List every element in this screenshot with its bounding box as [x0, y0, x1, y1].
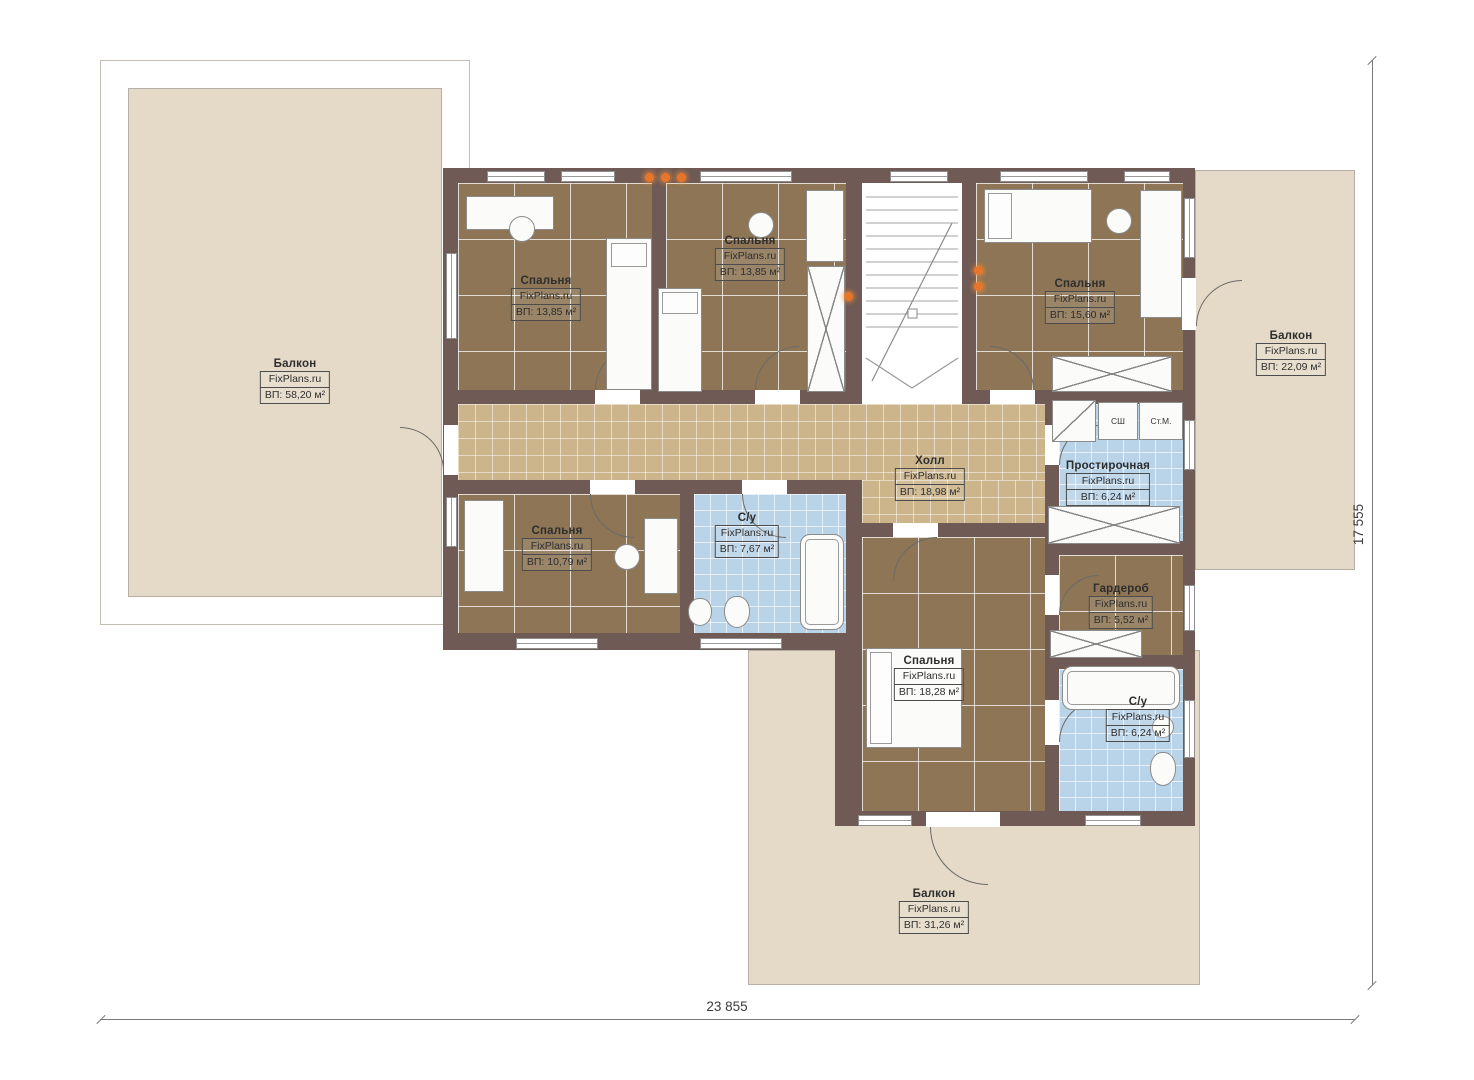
room-area: ВП: 18,28 м² — [894, 684, 964, 701]
pillow — [870, 652, 892, 744]
chair — [509, 216, 535, 242]
door-opening — [926, 812, 1000, 827]
room-area: ВП: 31,26 м² — [899, 917, 969, 934]
room-area: ВП: 13,85 м² — [511, 304, 581, 321]
chair — [1106, 208, 1132, 234]
dimension-width: 23 855 — [706, 999, 747, 1014]
wardrobe-cabinet — [1052, 356, 1172, 392]
window — [890, 171, 948, 182]
room-area: ВП: 6,24 м² — [1066, 489, 1150, 506]
bidet — [688, 598, 712, 626]
window — [1085, 815, 1141, 826]
window — [1184, 700, 1195, 758]
window — [700, 171, 792, 182]
balcony-left-floor — [128, 88, 442, 597]
light-icon — [645, 173, 654, 182]
room-area: ВП: 5,52 м² — [1089, 612, 1153, 629]
door-opening — [755, 390, 800, 404]
door-opening — [590, 480, 635, 494]
window — [1184, 585, 1195, 631]
room-label-balcony-bottom: Балкон FixPlans.ru ВП: 31,26 м² — [899, 888, 969, 934]
room-label-bedroom-bottom: Спальня FixPlans.ru ВП: 18,28 м² — [894, 655, 964, 701]
dimension-height: 17 555 — [1351, 504, 1366, 545]
wardrobe-cabinet — [1050, 630, 1142, 658]
room-area: ВП: 13,85 м² — [715, 264, 785, 281]
door-opening — [1045, 575, 1059, 615]
closet-cabinet — [1048, 506, 1180, 544]
brand-watermark: FixPlans.ru — [894, 668, 964, 685]
door-opening — [444, 425, 458, 475]
room-name: Балкон — [260, 358, 330, 370]
room-name: Спальня — [511, 275, 581, 287]
dimension-line-right — [1372, 60, 1373, 985]
dryer-box: СШ — [1098, 402, 1138, 440]
room-name: Балкон — [899, 888, 969, 900]
light-icon — [974, 266, 983, 275]
sofa — [464, 500, 504, 592]
brand-watermark: FixPlans.ru — [260, 371, 330, 388]
room-label-bedroom-bl: Спальня FixPlans.ru ВП: 10,79 м² — [522, 525, 592, 571]
laundry-sink — [1052, 400, 1096, 442]
room-label-bedroom-tl: Спальня FixPlans.ru ВП: 13,85 м² — [511, 275, 581, 321]
room-label-bathroom-2: С/у FixPlans.ru ВП: 6,24 м² — [1106, 696, 1170, 742]
light-icon — [974, 282, 983, 291]
room-label-hall: Холл FixPlans.ru ВП: 18,98 м² — [895, 455, 965, 501]
room-name: Балкон — [1256, 330, 1326, 342]
room-area: ВП: 18,98 м² — [895, 484, 965, 501]
window — [487, 171, 545, 182]
room-area: ВП: 15,60 м² — [1045, 307, 1115, 324]
room-name: С/у — [1106, 696, 1170, 708]
chair — [614, 544, 640, 570]
door-opening — [595, 390, 640, 404]
light-icon — [844, 292, 853, 301]
brand-watermark: FixPlans.ru — [511, 288, 581, 305]
pillow — [611, 243, 647, 267]
light-icon — [677, 173, 686, 182]
floor-plan-canvas: СШ Ст.М. Балкон FixPlans.ru ВП: 58,20 м²… — [0, 0, 1474, 1080]
door-opening — [893, 523, 938, 537]
room-name: Простирочная — [1066, 460, 1150, 472]
desk — [644, 518, 678, 594]
brand-watermark: FixPlans.ru — [1045, 291, 1115, 308]
window — [858, 815, 912, 826]
room-name: С/у — [715, 512, 779, 524]
dryer-label: СШ — [1111, 416, 1125, 426]
brand-watermark: FixPlans.ru — [715, 248, 785, 265]
room-name: Спальня — [1045, 278, 1115, 290]
brand-watermark: FixPlans.ru — [899, 901, 969, 918]
room-label-bedroom-tr: Спальня FixPlans.ru ВП: 15,60 м² — [1045, 278, 1115, 324]
wardrobe-cabinet — [807, 266, 845, 392]
washer-box: Ст.М. — [1139, 402, 1183, 440]
brand-watermark: FixPlans.ru — [1106, 709, 1170, 726]
bathtub — [800, 534, 844, 630]
brand-watermark: FixPlans.ru — [1066, 473, 1150, 490]
window — [1184, 198, 1195, 258]
light-icon — [661, 173, 670, 182]
room-name: Спальня — [715, 235, 785, 247]
pillow — [662, 292, 698, 314]
pillow — [988, 193, 1012, 239]
window — [1184, 420, 1195, 470]
room-name: Холл — [895, 455, 965, 467]
window — [1124, 171, 1170, 182]
brand-watermark: FixPlans.ru — [1256, 343, 1326, 360]
room-label-bedroom-tm: Спальня FixPlans.ru ВП: 13,85 м² — [715, 235, 785, 281]
dimension-line-bottom — [100, 1019, 1355, 1020]
staircase — [862, 183, 962, 404]
window — [516, 638, 598, 649]
window — [700, 638, 782, 649]
brand-watermark: FixPlans.ru — [522, 538, 592, 555]
room-label-laundry: Простирочная FixPlans.ru ВП: 6,24 м² — [1066, 460, 1150, 506]
door-opening — [990, 390, 1035, 404]
brand-watermark: FixPlans.ru — [1089, 596, 1153, 613]
room-label-balcony-right: Балкон FixPlans.ru ВП: 22,09 м² — [1256, 330, 1326, 376]
room-label-bathroom-1: С/у FixPlans.ru ВП: 7,67 м² — [715, 512, 779, 558]
room-area: ВП: 58,20 м² — [260, 387, 330, 404]
room-label-wardrobe: Гардероб FixPlans.ru ВП: 5,52 м² — [1089, 583, 1153, 629]
window — [446, 497, 457, 547]
room-area: ВП: 7,67 м² — [715, 541, 779, 558]
brand-watermark: FixPlans.ru — [715, 525, 779, 542]
room-area: ВП: 6,24 м² — [1106, 725, 1170, 742]
door-opening — [1182, 278, 1196, 330]
room-name: Спальня — [522, 525, 592, 537]
window — [446, 253, 457, 339]
room-label-balcony-left: Балкон FixPlans.ru ВП: 58,20 м² — [260, 358, 330, 404]
brand-watermark: FixPlans.ru — [895, 468, 965, 485]
door-opening — [1045, 700, 1059, 745]
toilet — [724, 596, 750, 628]
desk — [806, 190, 844, 262]
window — [1000, 171, 1088, 182]
door-opening — [742, 480, 787, 494]
room-name: Спальня — [894, 655, 964, 667]
room-name: Гардероб — [1089, 583, 1153, 595]
desk — [1140, 190, 1182, 318]
room-area: ВП: 10,79 м² — [522, 554, 592, 571]
toilet — [1150, 752, 1176, 786]
window — [561, 171, 615, 182]
washer-label: Ст.М. — [1151, 416, 1172, 426]
room-area: ВП: 22,09 м² — [1256, 359, 1326, 376]
